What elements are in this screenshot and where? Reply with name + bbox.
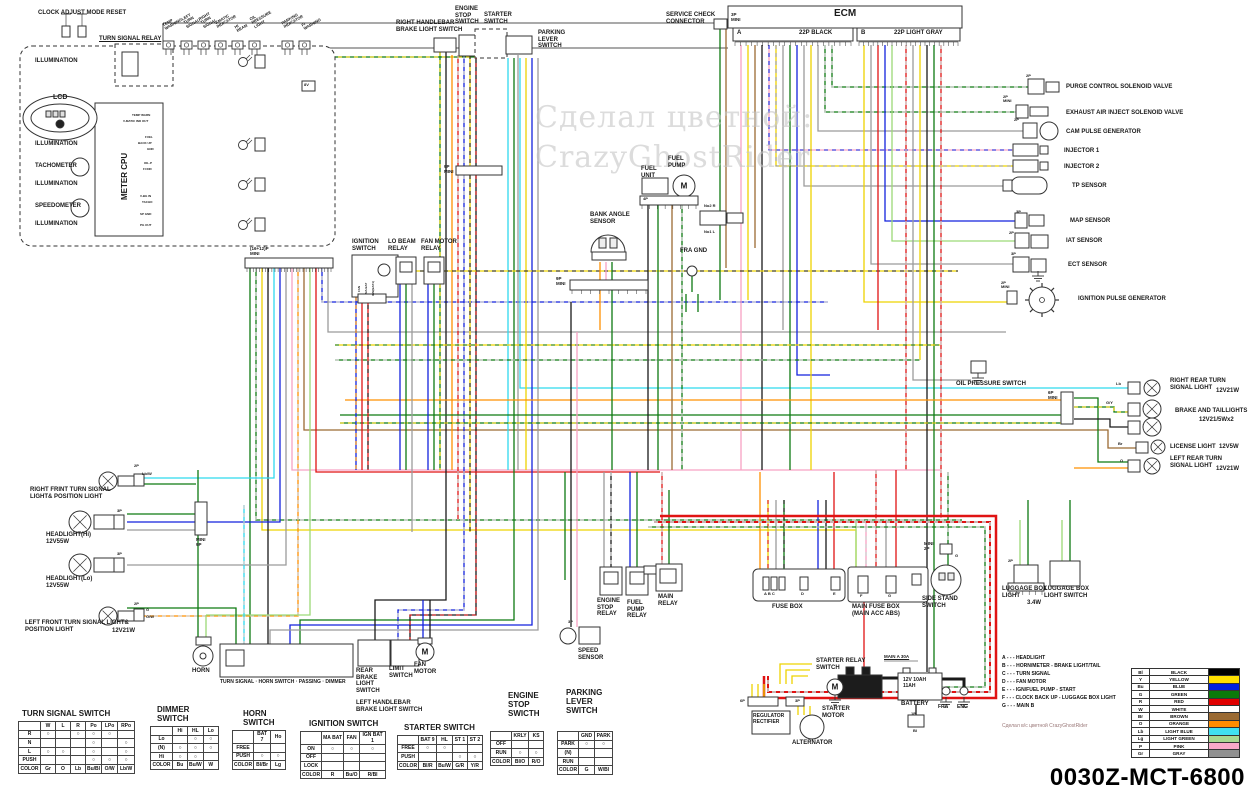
meter-connector-label: (16+12)P MINI — [250, 246, 269, 256]
legend-row: RRED — [1132, 698, 1240, 705]
legend-code: Lb — [1132, 728, 1150, 735]
shape-c — [1040, 122, 1058, 140]
table-cell: ○ — [203, 744, 218, 753]
shape-b — [46, 111, 51, 117]
injector2-conn — [1013, 160, 1038, 172]
table-cell — [437, 753, 453, 762]
table-header-cell — [233, 731, 254, 744]
table-cell: ○ — [344, 745, 360, 754]
speed-sensor-label: SPEED SENSOR — [578, 648, 603, 661]
tp-sensor-body — [1011, 177, 1047, 194]
table-cell: Gr — [41, 764, 56, 773]
alternator — [800, 715, 824, 739]
coil-no1l-label: No1 L — [704, 230, 715, 234]
main-a-fuse-label: MAIN A 30A — [884, 654, 909, 659]
ignsw-pin-1: FAN — [358, 286, 361, 292]
table-cell: ○ — [579, 740, 595, 749]
table-header-cell: GND — [579, 732, 595, 741]
starter-relay — [838, 675, 882, 698]
legend-code: P — [1132, 742, 1150, 749]
table-cell: ON — [301, 745, 322, 754]
shape-b — [1031, 259, 1046, 272]
shape-b — [114, 558, 124, 572]
table-cell: ○ — [254, 752, 271, 761]
fuel-unit-label: FUEL UNIT — [641, 166, 657, 179]
clock-connector — [62, 26, 70, 37]
code-2p-lugg: 2P — [1008, 559, 1013, 563]
wire — [832, 45, 1028, 87]
wire — [786, 670, 810, 684]
ignition-pulse-label: IGNITION PULSE GENERATOR — [1078, 296, 1166, 303]
rear-brake-switch-label: REAR BRAKE LIGHT SWITCH — [356, 668, 380, 695]
shape-b — [60, 111, 65, 117]
injector2-label: INJECTOR 2 — [1064, 164, 1099, 171]
code-2pmini-exh: 2P MINI — [1003, 95, 1011, 104]
shape-b — [226, 650, 244, 666]
wire — [913, 45, 971, 380]
left-rear-turn-label: LEFT REAR TURN SIGNAL LIGHT — [1170, 456, 1222, 469]
table-cell — [56, 756, 71, 765]
fuse-e: E — [833, 592, 836, 596]
legend-row: LgLIGHT GREEN — [1132, 735, 1240, 742]
ecm-a-type: 22P BLACK — [799, 30, 832, 37]
code-2p-rf: 2P — [134, 464, 139, 468]
shape-b — [255, 55, 265, 68]
t7-title: PARKING LEVER SWITCH — [566, 689, 602, 716]
wire-stripe — [127, 268, 298, 616]
table-header-cell: W — [41, 722, 56, 731]
table-cell: W/Bl — [595, 766, 613, 775]
table-header-cell: KRLY — [512, 732, 529, 741]
purge-valve-conn — [1028, 79, 1044, 94]
meter-connector — [245, 258, 333, 268]
meter-cpu-label: METER CPU — [121, 153, 130, 200]
map-sensor-label: MAP SENSOR — [1070, 218, 1110, 225]
table-cell — [71, 739, 86, 748]
fra-gnd-ring — [687, 266, 697, 276]
regulator-label: REGULATOR RECTIFIER — [753, 714, 784, 725]
code-br-lic: Br — [1118, 442, 1122, 446]
legend-row: PPINK — [1132, 742, 1240, 749]
ignition-pulse-generator-hub — [1040, 298, 1045, 303]
right-rear-turn-watt: 12V21W — [1216, 388, 1239, 395]
table-cell — [579, 749, 595, 758]
wire — [942, 679, 964, 687]
shape-b — [630, 572, 644, 584]
wire — [1074, 407, 1128, 412]
table-header-cell: RPo — [118, 722, 135, 731]
shape-b — [1128, 382, 1140, 394]
table-cell — [71, 756, 86, 765]
iat-sensor-label: IAT SENSOR — [1066, 238, 1102, 245]
horn-switch-table: BAT 7HoFREEPUSH○○COLORBl/BrLg — [232, 730, 286, 770]
right-brake-switch — [434, 38, 456, 52]
legend-name: LIGHT BLUE — [1150, 728, 1209, 735]
tachometer-label: TACHOMETER — [35, 163, 77, 170]
cpu-pin-7: FI IND — [143, 168, 152, 171]
ignsw-pin-2: MA BAT — [365, 283, 368, 294]
cam-pulse-conn — [1023, 123, 1037, 138]
table-cell: ○ — [86, 756, 102, 765]
legend-code: Br — [1132, 713, 1150, 720]
table-cell: Hi — [151, 752, 173, 761]
luggage-switch-box — [1050, 561, 1080, 586]
illumination-label-4: ILLUMINATION — [35, 221, 78, 228]
ignition-switch-table: MA BATFANIGN BAT 1ON○○○OFFLOCKCOLORRBu/O… — [300, 731, 386, 779]
code-3p-speed: 3P — [568, 620, 573, 624]
code-bl: Bl — [913, 729, 917, 733]
legend-swatch — [1209, 720, 1240, 727]
indicator-lamp-bulb — [201, 43, 205, 47]
shape-b — [1029, 215, 1044, 226]
starter-switch-table: BAT 9HLST 1ST 2FREE○○PUSH○○COLORBl/RBu/W… — [397, 735, 483, 770]
credit-text: Сделал в/с цветной CrazyGhostRider — [1002, 723, 1088, 729]
table-header-cell: MA BAT — [322, 732, 344, 745]
table-header-cell: ST 1 — [452, 736, 467, 745]
iat-sensor-conn — [1015, 233, 1029, 248]
shape-b — [1046, 82, 1059, 92]
mid-9p-connector — [456, 166, 502, 175]
illumination-label-3: ILLUMINATION — [35, 181, 78, 188]
table-cell — [595, 749, 613, 758]
t1-title: TURN SIGNAL SWITCH — [22, 710, 110, 719]
shape-c — [378, 264, 390, 276]
8v-label: 8V — [304, 83, 309, 87]
cpu-pin-9: TACHO — [142, 201, 152, 204]
table-cell: ○ — [41, 730, 56, 739]
table-cell: ○ — [86, 739, 102, 748]
legend-name: BLACK — [1150, 669, 1209, 676]
table-cell: Bu/Bl — [86, 764, 102, 773]
shape-c — [560, 628, 576, 644]
luggage-light-label: LUGGAGE BOX LIGHT — [1002, 586, 1047, 599]
shape-b — [727, 213, 743, 223]
shape-b — [771, 577, 777, 590]
bank-9p-label: 9P MINI — [556, 276, 566, 286]
indicator-lamp-bulb — [218, 43, 222, 47]
fuel-pump-relay-label: FUEL PUMP RELAY — [627, 600, 647, 620]
legend-name: WHITE — [1150, 705, 1209, 712]
shape-b — [592, 252, 626, 260]
ecm-conn-a — [733, 28, 853, 41]
legend-code: W — [1132, 705, 1150, 712]
legend-name: GRAY — [1150, 750, 1209, 757]
table-cell: ○ — [86, 747, 102, 756]
shape-b — [929, 668, 936, 673]
horn-label: HORN — [192, 668, 210, 675]
code-o-lr: O — [1120, 459, 1123, 463]
legend-row: BuBLUE — [1132, 683, 1240, 690]
wire-stripe — [398, 55, 464, 640]
table-cell: Lo — [151, 735, 173, 744]
table-header-cell: R — [71, 722, 86, 731]
legend-row: YYELLOW — [1132, 676, 1240, 683]
table-cell: ○ — [271, 752, 286, 761]
code-3p-lo: 3P — [117, 552, 122, 556]
code-2p-cam: 2P — [1014, 118, 1019, 122]
table-cell: ○ — [173, 752, 188, 761]
shape-b — [939, 573, 945, 580]
code-4p-fuel: 4P — [643, 197, 648, 201]
shape-b — [255, 178, 265, 191]
oil-pressure-switch-label: OIL PRESSURE SWITCH — [956, 381, 1026, 388]
indicator-lamp-bulb — [285, 43, 289, 47]
table-cell: O — [56, 764, 71, 773]
wire — [885, 45, 1015, 221]
legend-name: ORANGE — [1150, 720, 1209, 727]
cpu-pin-1: TEMP WARN — [132, 114, 150, 117]
table-cell: LOCK — [301, 762, 322, 771]
turn-signal-switch-table: WLRPoLPoRPoR○○○○N○○L○○○○PUSH○○○COLORGrOL… — [18, 721, 135, 774]
shape-b — [748, 697, 778, 706]
fuel-pump-label: FUEL PUMP — [668, 156, 685, 169]
turn-signal-relay-label: TURN SIGNAL RELAY — [99, 36, 161, 43]
table-header-cell — [398, 736, 419, 745]
service-check-connector — [714, 19, 727, 29]
shape-c — [960, 687, 968, 695]
part-number: 0030Z-MCT-6800 — [1050, 764, 1245, 792]
illumination-label-1: ILLUMINATION — [35, 58, 78, 65]
shape-b — [1136, 442, 1148, 453]
table-cell: Bl/O — [512, 757, 529, 766]
table-cell — [41, 739, 56, 748]
table-cell: ○ — [102, 756, 118, 765]
battery-value: 12V 10AH 11AH — [903, 678, 926, 689]
speedometer-label: SPEEDOMETER — [35, 203, 81, 210]
parking-lever-switch-label: PARKING LEVER SWITCH — [538, 30, 565, 50]
mid-9p-label: 9P MINI — [444, 164, 454, 174]
table-cell: ○ — [118, 747, 135, 756]
left-front-turn-watt: 12V21W — [112, 628, 135, 635]
table-cell: R/O — [529, 757, 544, 766]
legend-row: LbLIGHT BLUE — [1132, 728, 1240, 735]
legend-row: BlBLACK — [1132, 669, 1240, 676]
table-header-cell: PARK — [595, 732, 613, 741]
code-6p-reg: 6P — [740, 699, 745, 703]
table-cell: Lb — [71, 764, 86, 773]
brake-taillights-label: BRAKE AND TAILLIGHTS — [1175, 408, 1247, 415]
headlight-hi-label: HEADLIGHT(Hi) 12V55W — [46, 532, 91, 545]
table-cell — [344, 762, 360, 771]
table-cell: O/W — [102, 764, 118, 773]
table-cell: ○ — [86, 730, 102, 739]
ecm-a: A — [737, 30, 741, 37]
note-line: A - - - HEADLIGHT — [1002, 654, 1116, 662]
rear-6p-label: 6P MINI — [1048, 390, 1058, 400]
shape-line — [1051, 309, 1054, 312]
table-cell — [102, 739, 118, 748]
fuse-box-label: FUSE BOX — [772, 604, 803, 611]
table-cell: RUN — [558, 757, 579, 766]
table-cell — [579, 757, 595, 766]
wire-stripe — [832, 45, 1028, 87]
table-cell: PUSH — [233, 752, 254, 761]
legend-swatch — [1209, 691, 1240, 698]
table-cell: ○ — [437, 744, 453, 753]
bank-angle-sensor — [591, 235, 625, 252]
table-cell — [56, 730, 71, 739]
wire — [1074, 419, 1128, 427]
code-lb-rr: Lb — [1116, 382, 1121, 386]
table-cell — [118, 730, 135, 739]
table-cell: ○ — [512, 749, 529, 758]
table-cell — [203, 752, 218, 761]
shape-b — [1003, 180, 1012, 191]
shape-b — [1128, 403, 1140, 416]
map-sensor-conn — [1015, 213, 1027, 228]
lo-beam-relay-label: LO BEAM RELAY — [388, 239, 416, 252]
fan-motor-label: FAN MOTOR — [414, 662, 436, 675]
wire — [780, 664, 812, 684]
table-header-cell: Ho — [271, 731, 286, 744]
legend-swatch — [1209, 676, 1240, 683]
shape-line — [1030, 288, 1033, 291]
legend-swatch — [1209, 742, 1240, 749]
coil-no2r-label: No2 R — [704, 204, 716, 208]
table-cell: N — [19, 739, 41, 748]
fuel-unit-box — [642, 178, 668, 194]
table-cell: G/R — [452, 761, 467, 770]
t6-title: ENGINE STOP SWICTH — [508, 692, 540, 719]
table-cell: W — [203, 761, 218, 770]
table-header-cell: Lo — [203, 727, 218, 736]
legend-name: LIGHT GREEN — [1150, 735, 1209, 742]
luggage-light-box — [1014, 565, 1038, 583]
speed-sensor-box — [579, 627, 600, 644]
table-header-cell: LPo — [102, 722, 118, 731]
indicator-lamp-bulb — [184, 43, 188, 47]
table-cell: ○ — [452, 753, 467, 762]
code-3p-ect: 3P — [1011, 252, 1016, 256]
right-handlebar-brake-label: RIGHT HANDLEBAR BRAKE LIGHT SWITCH — [396, 20, 462, 33]
shape-b — [1128, 460, 1140, 472]
fuse-abc: A B C — [764, 592, 775, 596]
table-cell: COLOR — [301, 770, 322, 779]
shape-c — [942, 687, 950, 695]
table-cell: ○ — [41, 747, 56, 756]
shape-c — [200, 653, 206, 659]
table-cell — [322, 753, 344, 762]
table-cell: Y/R — [467, 761, 482, 770]
table-cell: G — [579, 766, 595, 775]
bank-angle-label: BANK ANGLE SENSOR — [590, 212, 630, 225]
table-cell: ○ — [188, 735, 204, 744]
legend-swatch — [1209, 669, 1240, 676]
shape-b — [94, 558, 114, 572]
table-cell: Bu/O — [344, 770, 360, 779]
table-cell: FREE — [398, 744, 419, 753]
shape-c — [56, 120, 64, 128]
table-header-cell: BAT 9 — [419, 736, 437, 745]
cpu-pin-5: GND — [147, 148, 154, 151]
bank-9p-connector — [570, 280, 648, 290]
legend-row: GGREEN — [1132, 691, 1240, 698]
wire — [375, 52, 446, 640]
shape-b — [660, 569, 676, 583]
table-cell: R — [19, 730, 41, 739]
table-cell — [344, 753, 360, 762]
code-g-ss: G — [955, 554, 958, 558]
t3-title: HORN SWITCH — [243, 710, 275, 728]
code-2p-iat: 2P — [1009, 231, 1014, 235]
table-cell: Bl/R — [419, 761, 437, 770]
eng-label: ENG — [957, 705, 968, 711]
legend-row: BrBROWN — [1132, 713, 1240, 720]
table-cell: Lg — [271, 761, 286, 770]
cpu-pin-2: V-MATIC IND OUT — [123, 120, 148, 123]
wire — [398, 55, 464, 640]
wiring-diagram-canvas: Сделал цветной: CrazyGhostRider MMM CLOC… — [0, 0, 1251, 800]
table-cell: Bu/W — [188, 761, 204, 770]
shape-b — [763, 577, 769, 590]
table-header-cell: L — [56, 722, 71, 731]
left-handlebar-brake-label: LEFT HANDLEBAR BRAKE LIGHT SWITCH — [356, 700, 422, 713]
1p-connector — [908, 715, 924, 727]
table-cell: L — [19, 747, 41, 756]
table-cell: ○ — [71, 730, 86, 739]
table-cell — [173, 735, 188, 744]
fuse-d: D — [801, 592, 804, 596]
table-cell — [360, 753, 386, 762]
table-cell — [360, 762, 386, 771]
note-line: G - - - MAIN B — [1002, 702, 1116, 710]
table-header-cell: BAT 7 — [254, 731, 271, 744]
shape-b — [53, 111, 58, 117]
table-header-cell: Hi — [173, 727, 188, 736]
table-cell: COLOR — [398, 761, 419, 770]
oil-pressure-switch — [971, 361, 986, 373]
table-cell — [102, 747, 118, 756]
lcd-label: LCD — [53, 94, 67, 102]
fuse-f: F — [860, 594, 862, 598]
table-cell: ○ — [419, 744, 437, 753]
cpu-pin-4: BACK UP — [138, 142, 152, 145]
table-header-cell: FAN — [344, 732, 360, 745]
table-cell: ○ — [322, 745, 344, 754]
wire — [892, 45, 1015, 241]
table-cell: Bu — [173, 761, 188, 770]
note-line: E - - - IGN/FUEL PUMP - START — [1002, 686, 1116, 694]
illumination-label-2: ILLUMINATION — [35, 141, 78, 148]
wire — [410, 55, 476, 640]
parking-lever-switch-table: GNDPARKPARK○○(N)RUNCOLORGW/Bl — [557, 731, 613, 775]
table-cell: OFF — [301, 753, 322, 762]
legend-swatch — [1209, 735, 1240, 742]
fan-motor-letter: M — [422, 648, 429, 657]
shape-b — [886, 576, 896, 593]
shape-b — [118, 476, 134, 486]
luggage-switch-label: LUGGAGE BOX LIGHT SWITCH — [1044, 586, 1089, 599]
table-cell: ○ — [188, 744, 204, 753]
left-rear-turn-watt: 12V21W — [1216, 466, 1239, 473]
table-cell: PARK — [558, 740, 579, 749]
shape-b — [134, 609, 144, 621]
shape-b — [948, 573, 954, 580]
table-cell: ○ — [118, 739, 135, 748]
table-header-cell: IGN BAT 1 — [360, 732, 386, 745]
table-header-cell: HL — [188, 727, 204, 736]
t4-title: IGNITION SWITCH — [309, 720, 378, 729]
legend-row: WWHITE — [1132, 705, 1240, 712]
brake-taillights-watt: 12V21/5Wx2 — [1199, 417, 1234, 424]
legend-swatch — [1209, 713, 1240, 720]
legend-swatch — [1209, 750, 1240, 757]
table-header-cell: ST 2 — [467, 736, 482, 745]
code-3p-hi: 3P — [117, 509, 122, 513]
injector1-conn — [1013, 144, 1038, 156]
table-cell — [271, 744, 286, 753]
shape-b — [122, 52, 138, 76]
